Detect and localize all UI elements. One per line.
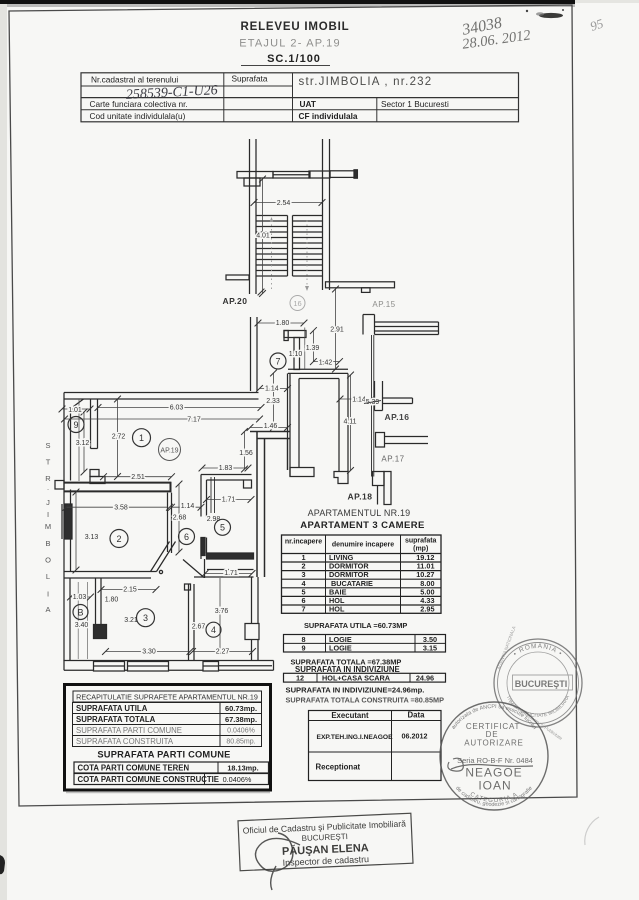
svg-text:7: 7 xyxy=(275,356,280,366)
svg-text:1.80: 1.80 xyxy=(105,597,119,604)
svg-text:AP.16: AP.16 xyxy=(384,412,409,422)
svg-text:IOAN: IOAN xyxy=(478,779,511,793)
svg-text:2.54: 2.54 xyxy=(277,200,291,207)
svg-text:1.10: 1.10 xyxy=(289,351,303,358)
svg-text:2.68: 2.68 xyxy=(173,515,187,522)
svg-text:AP.15: AP.15 xyxy=(372,300,395,309)
svg-text:2: 2 xyxy=(116,534,121,544)
svg-text:SUPRAFATA PARTI COMUNE: SUPRAFATA PARTI COMUNE xyxy=(76,726,182,735)
svg-text:4.01: 4.01 xyxy=(256,233,270,240)
svg-text:0.0406%: 0.0406% xyxy=(227,728,255,735)
svg-text:1.42: 1.42 xyxy=(319,360,333,367)
svg-text:Nr.cadastral al terenului: Nr.cadastral al terenului xyxy=(91,75,178,85)
svg-text:NEAGOE: NEAGOE xyxy=(465,766,522,780)
svg-text:Executant: Executant xyxy=(331,711,369,720)
svg-text:SUPRAFATA IN INDIVIZIUNE=24.96: SUPRAFATA IN INDIVIZIUNE=24.96mp. xyxy=(286,686,425,695)
svg-text:3.15: 3.15 xyxy=(423,643,437,652)
svg-text:EXP.TEH.ING.I.NEAGOE: EXP.TEH.ING.I.NEAGOE xyxy=(317,734,394,741)
svg-text:80.85mp.: 80.85mp. xyxy=(226,739,255,746)
svg-text:APARTAMENTUL NR.19: APARTAMENTUL NR.19 xyxy=(308,508,411,518)
svg-text:BUCUREŞTI: BUCUREŞTI xyxy=(515,679,568,689)
svg-text:60.73mp.: 60.73mp. xyxy=(225,704,257,713)
svg-text:APARTAMENT 3 CAMERE: APARTAMENT 3 CAMERE xyxy=(300,520,424,531)
svg-text:I: I xyxy=(47,590,49,599)
svg-text:str.JIMBOLIA , nr.232: str.JIMBOLIA , nr.232 xyxy=(299,76,433,88)
svg-text:9: 9 xyxy=(301,643,305,652)
svg-text:12: 12 xyxy=(296,674,304,683)
svg-text:nr.incapere: nr.incapere xyxy=(285,539,322,546)
svg-text:1: 1 xyxy=(139,433,144,443)
svg-text:UAT: UAT xyxy=(300,99,316,109)
svg-text:2.95: 2.95 xyxy=(420,604,434,613)
svg-text:0.0406%: 0.0406% xyxy=(223,775,252,784)
svg-text:1.14: 1.14 xyxy=(181,503,195,510)
svg-text:6: 6 xyxy=(184,532,189,542)
svg-text:AUTORIZARE: AUTORIZARE xyxy=(464,739,523,748)
svg-text:1.71: 1.71 xyxy=(222,497,236,504)
svg-text:18.13mp.: 18.13mp. xyxy=(227,764,258,773)
svg-text:1.14: 1.14 xyxy=(265,386,279,393)
svg-text:SUPRAFATA TOTALA: SUPRAFATA TOTALA xyxy=(76,715,156,724)
svg-text:4.11: 4.11 xyxy=(343,419,356,426)
svg-text:6.03: 6.03 xyxy=(170,404,184,411)
svg-text:R: R xyxy=(45,474,51,483)
svg-text:7: 7 xyxy=(301,604,305,613)
svg-text:3.40: 3.40 xyxy=(75,622,89,629)
svg-text:suprafata: suprafata xyxy=(405,538,437,545)
svg-text:16: 16 xyxy=(293,299,301,308)
svg-text:B: B xyxy=(45,539,50,548)
svg-text:A: A xyxy=(45,605,50,614)
svg-text:RECAPITULATIE SUPRAFETE APARTA: RECAPITULATIE SUPRAFETE APARTAMENTUL NR.… xyxy=(76,693,258,702)
svg-text:O: O xyxy=(45,556,51,565)
svg-text:7.17: 7.17 xyxy=(187,416,201,423)
svg-text:HOL: HOL xyxy=(329,604,345,613)
svg-text:LOGIE: LOGIE xyxy=(329,643,352,652)
svg-text:1.80: 1.80 xyxy=(276,320,290,327)
svg-text:1.01: 1.01 xyxy=(68,407,82,414)
svg-text:AP.20: AP.20 xyxy=(222,296,247,306)
svg-text:RELEVEU IMOBIL: RELEVEU IMOBIL xyxy=(241,21,350,33)
svg-text:L: L xyxy=(46,572,50,581)
svg-text:Suprafata: Suprafata xyxy=(232,74,268,84)
svg-text:2.67: 2.67 xyxy=(192,623,206,630)
svg-text:5: 5 xyxy=(220,523,225,533)
svg-text:06.2012: 06.2012 xyxy=(402,732,428,741)
svg-text:1.46: 1.46 xyxy=(264,423,278,430)
svg-text:AP.17: AP.17 xyxy=(381,455,404,464)
svg-text:1.71: 1.71 xyxy=(224,570,238,577)
svg-text:SUPRAFATA UTILA =60.73MP: SUPRAFATA UTILA =60.73MP xyxy=(304,621,407,630)
svg-text:1.83: 1.83 xyxy=(219,465,233,472)
svg-text:2.33: 2.33 xyxy=(266,398,280,405)
svg-text:COTA PARTI COMUNE CONSTRUCTIE: COTA PARTI COMUNE CONSTRUCTIE xyxy=(78,775,220,784)
svg-text:9: 9 xyxy=(73,420,78,430)
svg-text:S: S xyxy=(45,441,50,450)
svg-text:3.12: 3.12 xyxy=(76,440,90,447)
svg-text:24.96: 24.96 xyxy=(416,674,434,683)
svg-text:T: T xyxy=(46,458,51,467)
svg-text:I: I xyxy=(47,510,49,519)
svg-text:67.38mp.: 67.38mp. xyxy=(225,715,257,724)
svg-text:SUPRAFATA TOTALA CONSTRUITA =8: SUPRAFATA TOTALA CONSTRUITA =80.85MP xyxy=(286,696,445,705)
svg-text:SUPRAFATA PARTI COMUNE: SUPRAFATA PARTI COMUNE xyxy=(97,750,230,760)
svg-text:CF individulala: CF individulala xyxy=(299,111,358,121)
svg-text:3.13: 3.13 xyxy=(85,534,99,541)
svg-text:Receptionat: Receptionat xyxy=(316,763,361,772)
svg-text:1.56: 1.56 xyxy=(239,450,253,457)
svg-text:HOL+CASA SCARA: HOL+CASA SCARA xyxy=(322,674,391,683)
svg-text:2.27: 2.27 xyxy=(216,649,230,656)
svg-text:Sector 1 Bucuresti: Sector 1 Bucuresti xyxy=(381,99,449,109)
svg-text:AP.19: AP.19 xyxy=(160,447,178,454)
svg-text:.: . xyxy=(47,483,49,492)
svg-text:4: 4 xyxy=(211,625,216,635)
svg-text:Data: Data xyxy=(408,711,426,720)
svg-text:SC.1/100: SC.1/100 xyxy=(267,53,321,65)
svg-text:1.14: 1.14 xyxy=(352,396,366,403)
svg-text:1.39: 1.39 xyxy=(306,345,320,352)
svg-text:2.51: 2.51 xyxy=(131,474,145,481)
svg-text:2.98: 2.98 xyxy=(207,516,221,523)
svg-text:COTA PARTI COMUNE TEREN: COTA PARTI COMUNE TEREN xyxy=(78,764,190,773)
svg-text:2.72: 2.72 xyxy=(112,434,126,441)
svg-text:3.58: 3.58 xyxy=(114,505,128,512)
svg-text:SUPRAFATA CONSTRUITA: SUPRAFATA CONSTRUITA xyxy=(76,737,174,746)
svg-text:1.03: 1.03 xyxy=(73,594,87,601)
svg-text:(mp): (mp) xyxy=(413,546,428,553)
svg-text:AP.18: AP.18 xyxy=(347,492,372,502)
svg-text:B: B xyxy=(77,607,83,617)
svg-text:Cod unitate individulala(u): Cod unitate individulala(u) xyxy=(90,111,186,121)
svg-text:J: J xyxy=(46,498,50,507)
svg-text:M: M xyxy=(45,522,51,531)
svg-text:3: 3 xyxy=(143,613,148,623)
svg-text:2.91: 2.91 xyxy=(330,327,344,334)
svg-text:Seria RO-B-F Nr. 0484: Seria RO-B-F Nr. 0484 xyxy=(457,756,533,765)
svg-text:SUPRAFATA UTILA: SUPRAFATA UTILA xyxy=(76,704,148,713)
svg-text:ETAJUL 2- AP.19: ETAJUL 2- AP.19 xyxy=(239,38,341,50)
svg-text:3.30: 3.30 xyxy=(142,649,156,656)
svg-text:2.15: 2.15 xyxy=(123,587,137,594)
svg-text:denumire incapere: denumire incapere xyxy=(332,542,394,549)
svg-text:3.21: 3.21 xyxy=(124,617,138,624)
svg-text:3.76: 3.76 xyxy=(215,608,229,615)
